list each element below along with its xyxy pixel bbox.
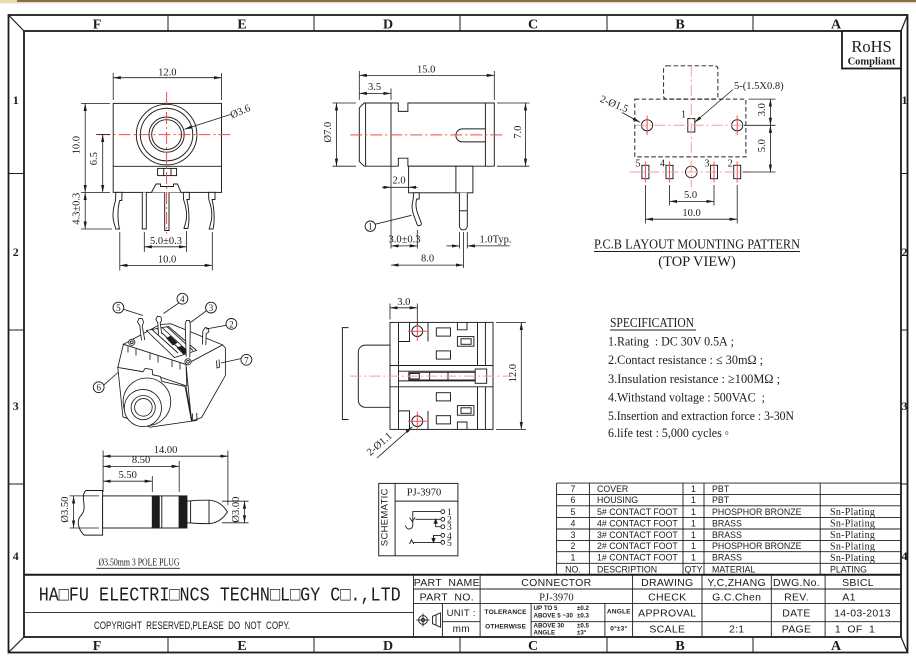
svg-text:Ø3.50mm 3 POLE PLUG: Ø3.50mm 3 POLE PLUG (99, 558, 180, 569)
svg-text:Ø3.00: Ø3.00 (231, 497, 242, 523)
svg-text:12.0: 12.0 (158, 68, 176, 79)
svg-text:±0.3: ±0.3 (577, 613, 590, 620)
svg-text:5.0: 5.0 (684, 190, 697, 201)
svg-text:15.0: 15.0 (417, 65, 435, 76)
svg-text:A: A (831, 639, 842, 654)
svg-text:1: 1 (691, 495, 696, 505)
svg-text:Compliant: Compliant (848, 57, 896, 68)
svg-text:8.0: 8.0 (421, 254, 434, 265)
svg-text:PART NO.: PART NO. (420, 591, 474, 603)
svg-text:G.C.Chen: G.C.Chen (712, 591, 761, 603)
svg-text:ANGLE: ANGLE (534, 630, 556, 637)
svg-text:4.Withstand voltage : 500VAC: 4.Withstand voltage : 500VAC ; (608, 389, 765, 404)
svg-text:PART NAME: PART NAME (414, 577, 480, 589)
svg-text:10.0: 10.0 (72, 136, 83, 154)
svg-text:2: 2 (13, 245, 19, 259)
svg-text:ABOVE 30: ABOVE 30 (534, 623, 565, 630)
svg-text:Ø3.50: Ø3.50 (60, 497, 71, 523)
svg-text:4.3±0.3: 4.3±0.3 (72, 193, 83, 225)
svg-text:2: 2 (229, 319, 234, 329)
svg-text:Ø7.0: Ø7.0 (323, 122, 334, 143)
svg-text:1: 1 (691, 484, 696, 494)
svg-text:BRASS: BRASS (712, 530, 742, 540)
svg-text:PJ-3970: PJ-3970 (407, 488, 441, 499)
svg-text:PAGE: PAGE (782, 623, 812, 635)
svg-text:0°±3°: 0°±3° (610, 625, 627, 633)
svg-text:PLATING: PLATING (830, 564, 867, 574)
svg-text:BRASS: BRASS (712, 553, 742, 563)
svg-text:D: D (383, 639, 393, 654)
svg-text:Sn-Plating: Sn-Plating (830, 530, 875, 541)
svg-text:F: F (93, 639, 102, 654)
svg-text:mm: mm (453, 624, 470, 635)
svg-text:1: 1 (691, 541, 696, 551)
svg-text:HA□FU ELECTRI□NCS TECHN□L□GY C: HA□FU ELECTRI□NCS TECHN□L□GY C□.,LTD (39, 585, 401, 607)
svg-text:PHOSPHOR BRONZE: PHOSPHOR BRONZE (712, 541, 802, 551)
svg-text:3.0±0.3: 3.0±0.3 (388, 234, 420, 245)
svg-text:PBT: PBT (712, 484, 730, 494)
svg-text:3: 3 (571, 530, 576, 540)
svg-text:SPECIFICATION: SPECIFICATION (610, 315, 694, 330)
svg-text:Sn-Plating: Sn-Plating (830, 553, 875, 564)
svg-text:2: 2 (902, 245, 908, 259)
svg-text:2.0: 2.0 (392, 176, 405, 187)
svg-text:5: 5 (636, 159, 641, 170)
svg-text:CHECK: CHECK (648, 591, 686, 603)
svg-text:1: 1 (13, 93, 19, 107)
svg-text:D: D (383, 18, 393, 33)
svg-text:3.0: 3.0 (757, 103, 768, 116)
svg-text:6.5: 6.5 (89, 152, 100, 165)
svg-text:5.0±0.3: 5.0±0.3 (150, 236, 182, 247)
svg-text:HOUSING: HOUSING (597, 495, 638, 505)
svg-text:COPYRIGHT RESERVED,PLEASE DO: COPYRIGHT RESERVED,PLEASE DO NOT COPY. (94, 620, 290, 632)
svg-text:14.00: 14.00 (154, 445, 178, 456)
svg-text:C: C (528, 18, 538, 33)
svg-text:E: E (237, 639, 246, 654)
svg-text:5: 5 (447, 539, 452, 549)
svg-text:1: 1 (691, 507, 696, 517)
svg-text:SBICL: SBICL (842, 577, 874, 589)
svg-text:1: 1 (368, 222, 373, 232)
svg-text:1 OF 1: 1 OF 1 (835, 623, 875, 635)
svg-text:1: 1 (691, 518, 696, 528)
svg-text:7: 7 (244, 355, 249, 365)
svg-text:5-(1.5X0.8): 5-(1.5X0.8) (734, 81, 784, 92)
svg-text:TOLERANCE: TOLERANCE (485, 609, 528, 616)
svg-text:5.0: 5.0 (757, 139, 768, 152)
svg-text:MATERIAL: MATERIAL (712, 564, 755, 574)
svg-text:4# CONTACT FOOT: 4# CONTACT FOOT (597, 518, 678, 528)
svg-text:6: 6 (571, 495, 576, 505)
svg-text:2# CONTACT FOOT: 2# CONTACT FOOT (597, 541, 678, 551)
svg-text:E: E (237, 18, 246, 33)
svg-text:P.C.B LAYOUT MOUNTING PATTERN: P.C.B LAYOUT MOUNTING PATTERN (594, 238, 800, 253)
svg-text:1.Rating : DC 30V 0.5A ;: 1.Rating : DC 30V 0.5A ; (608, 334, 734, 349)
svg-text:ANGLE: ANGLE (607, 609, 631, 616)
svg-text:1: 1 (691, 530, 696, 540)
svg-text:REV.: REV. (784, 591, 809, 603)
svg-text:Sn-Plating: Sn-Plating (830, 519, 875, 530)
svg-text:10.0: 10.0 (682, 208, 700, 219)
svg-text:4: 4 (13, 549, 19, 563)
svg-text:SCALE: SCALE (649, 623, 685, 635)
svg-text:DWG.No.: DWG.No. (773, 577, 820, 589)
svg-text:B: B (675, 18, 684, 33)
svg-text:UP TO 5: UP TO 5 (534, 605, 559, 612)
svg-text:1: 1 (571, 553, 576, 563)
svg-text:10.0: 10.0 (158, 254, 176, 265)
svg-text:±0.5: ±0.5 (577, 623, 590, 630)
svg-text:PJ-3970: PJ-3970 (539, 592, 573, 603)
svg-text:Sn-Plating: Sn-Plating (830, 541, 875, 552)
svg-text:SCHEMATIC: SCHEMATIC (380, 488, 391, 546)
svg-text:3.5: 3.5 (368, 82, 381, 93)
svg-text:(TOP VIEW): (TOP VIEW) (658, 254, 736, 270)
svg-text:±0.2: ±0.2 (577, 605, 590, 612)
svg-text:APPROVAL: APPROVAL (638, 608, 696, 620)
svg-text:8.50: 8.50 (132, 455, 150, 466)
svg-text:5: 5 (116, 303, 121, 313)
svg-text:1.0Typ.: 1.0Typ. (480, 234, 512, 245)
svg-text:3: 3 (902, 399, 908, 413)
svg-text:RoHS: RoHS (851, 37, 891, 56)
svg-text:3: 3 (705, 159, 710, 170)
svg-text:4: 4 (571, 518, 576, 528)
svg-text:DRAWING: DRAWING (641, 577, 693, 589)
svg-text:1: 1 (902, 93, 908, 107)
svg-text:B: B (675, 639, 684, 654)
svg-text:1# CONTACT FOOT: 1# CONTACT FOOT (597, 553, 678, 563)
svg-text:14-03-2013: 14-03-2013 (834, 608, 891, 620)
svg-text:2: 2 (571, 541, 576, 551)
svg-text:NO.: NO. (565, 564, 581, 574)
svg-text:7.0: 7.0 (513, 126, 524, 139)
svg-text:2.Contact resistance : ≤ 30mΩ: 2.Contact resistance : ≤ 30mΩ ; (608, 352, 763, 367)
svg-text:Sn-Plating: Sn-Plating (830, 507, 875, 518)
svg-text:ABOVE 5 ~30: ABOVE 5 ~30 (534, 613, 574, 620)
svg-text:UNIT :: UNIT : (447, 608, 476, 619)
svg-text:6.life test : 5,000 cycles ◦: 6.life test : 5,000 cycles ◦ (608, 425, 729, 440)
svg-text:3.0: 3.0 (397, 297, 410, 308)
svg-text:2:1: 2:1 (729, 623, 745, 635)
svg-text:5.50: 5.50 (119, 470, 137, 481)
svg-text:PHOSPHOR BRONZE: PHOSPHOR BRONZE (712, 507, 802, 517)
svg-text:PBT: PBT (712, 495, 730, 505)
svg-text:3: 3 (209, 303, 214, 313)
svg-text:COVER: COVER (597, 484, 628, 494)
svg-text:4: 4 (660, 159, 665, 170)
svg-text:5: 5 (571, 507, 576, 517)
svg-text:12.0: 12.0 (508, 364, 519, 382)
svg-text:±3°: ±3° (577, 630, 587, 637)
svg-text:A1: A1 (842, 591, 855, 603)
svg-text:3: 3 (13, 399, 19, 413)
svg-text:C: C (528, 639, 538, 654)
svg-text:QTY: QTY (684, 564, 702, 574)
svg-text:3.Insulation resistance : ≥100: 3.Insulation resistance : ≥100MΩ ; (608, 371, 780, 386)
svg-text:5# CONTACT FOOT: 5# CONTACT FOOT (597, 507, 678, 517)
svg-text:Y,C,ZHANG: Y,C,ZHANG (707, 577, 766, 589)
svg-text:BRASS: BRASS (712, 518, 742, 528)
svg-text:5.Insertion and extraction for: 5.Insertion and extraction force : 3-30N (608, 408, 795, 423)
svg-text:A: A (831, 18, 842, 33)
svg-text:DATE: DATE (782, 608, 810, 620)
svg-text:6: 6 (96, 383, 101, 393)
svg-text:3# CONTACT FOOT: 3# CONTACT FOOT (597, 530, 678, 540)
svg-text:CONNECTOR: CONNECTOR (521, 577, 591, 589)
svg-text:4: 4 (180, 294, 185, 304)
svg-text:7: 7 (571, 484, 576, 494)
svg-text:F: F (93, 18, 102, 33)
svg-text:2: 2 (728, 159, 733, 170)
svg-text:4: 4 (902, 549, 908, 563)
svg-text:OTHERWISE: OTHERWISE (485, 624, 527, 631)
svg-text:1: 1 (681, 110, 686, 121)
svg-text:DESCRIPTION: DESCRIPTION (597, 564, 657, 574)
svg-text:1: 1 (691, 553, 696, 563)
